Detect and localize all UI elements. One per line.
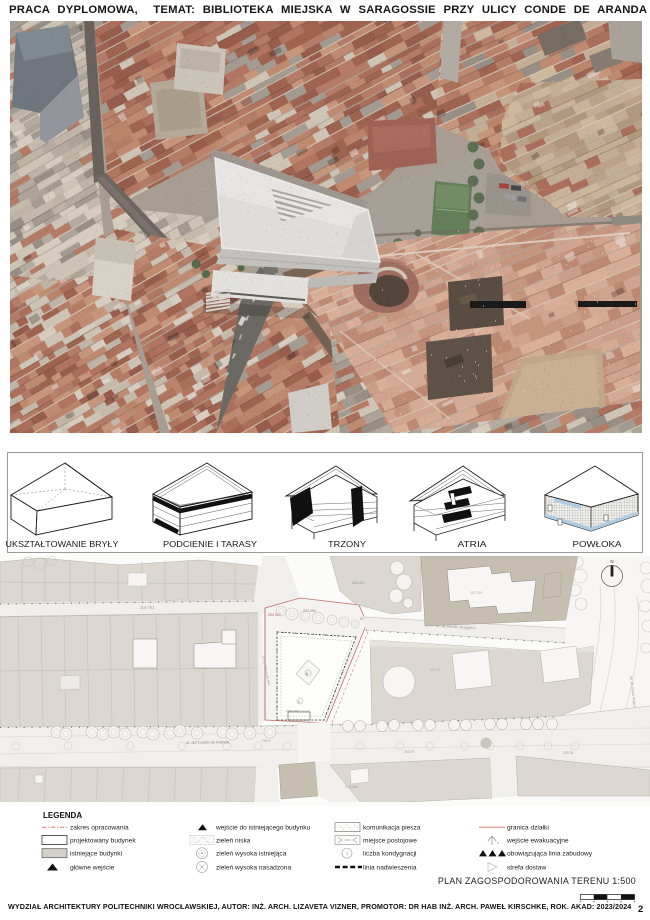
- svg-text:zakres opracowania: zakres opracowania: [70, 825, 129, 832]
- svg-text:zieleń wysoka nasadzona: zieleń wysoka nasadzona: [216, 864, 291, 871]
- svg-text:liczba kondygnacji: liczba kondygnacji: [363, 851, 417, 858]
- svg-text:1: 1: [298, 700, 300, 704]
- svg-text:istniejące budynki: istniejące budynki: [70, 851, 123, 858]
- svg-text:e: e: [497, 840, 500, 845]
- svg-text:ATRIA: ATRIA: [458, 539, 487, 549]
- svg-text:wejście ewakuacyjne: wejście ewakuacyjne: [506, 837, 569, 844]
- svg-text:203 57: 203 57: [430, 668, 440, 672]
- svg-text:6: 6: [306, 672, 308, 676]
- svg-text:204 021: 204 021: [268, 613, 281, 617]
- svg-text:LEGENDA: LEGENDA: [43, 811, 82, 820]
- svg-text:203 9: 203 9: [262, 739, 271, 743]
- svg-text:zieleń niska: zieleń niska: [216, 837, 251, 844]
- svg-text:granica działki: granica działki: [507, 825, 549, 832]
- svg-text:203 762: 203 762: [140, 605, 155, 610]
- svg-text:TRZONY: TRZONY: [328, 539, 366, 549]
- svg-text:MIGUEL: MIGUEL: [352, 581, 365, 585]
- svg-text:203 57: 203 57: [404, 750, 414, 754]
- svg-text:N: N: [610, 559, 613, 564]
- svg-text:komunikacja piesza: komunikacja piesza: [363, 825, 421, 832]
- svg-text:2280+840.7 m npm: 2280+840.7 m npm: [286, 709, 311, 713]
- svg-text:projektowany budynek: projektowany budynek: [70, 837, 136, 844]
- svg-text:linia nadwieszenia: linia nadwieszenia: [363, 864, 417, 871]
- svg-text:wejście do istniejącego budynk: wejście do istniejącego budynku: [215, 825, 311, 832]
- svg-text:PODCIENIE I TARASY: PODCIENIE I TARASY: [163, 539, 257, 549]
- svg-text:203 666: 203 666: [303, 609, 316, 613]
- svg-text:POWŁOKA: POWŁOKA: [573, 539, 622, 549]
- svg-text:ul. del Conde de Aranda: ul. del Conde de Aranda: [186, 739, 230, 745]
- svg-text:i: i: [346, 851, 347, 857]
- svg-text:UKSZTAŁTOWANIE BRYŁY: UKSZTAŁTOWANIE BRYŁY: [6, 539, 119, 549]
- svg-text:główne wejście: główne wejście: [70, 864, 115, 871]
- svg-text:2 03 864: 2 03 864: [345, 785, 358, 789]
- svg-text:zieleń wysoka istniejąca: zieleń wysoka istniejąca: [216, 851, 287, 858]
- svg-text:203 36: 203 36: [563, 751, 573, 755]
- svg-text:obowiązująca linia zabudowy: obowiązująca linia zabudowy: [507, 851, 593, 858]
- svg-text:237 218: 237 218: [470, 591, 482, 595]
- svg-text:strefa dostaw: strefa dostaw: [507, 864, 546, 871]
- svg-text:miejsce postojowe: miejsce postojowe: [363, 837, 417, 844]
